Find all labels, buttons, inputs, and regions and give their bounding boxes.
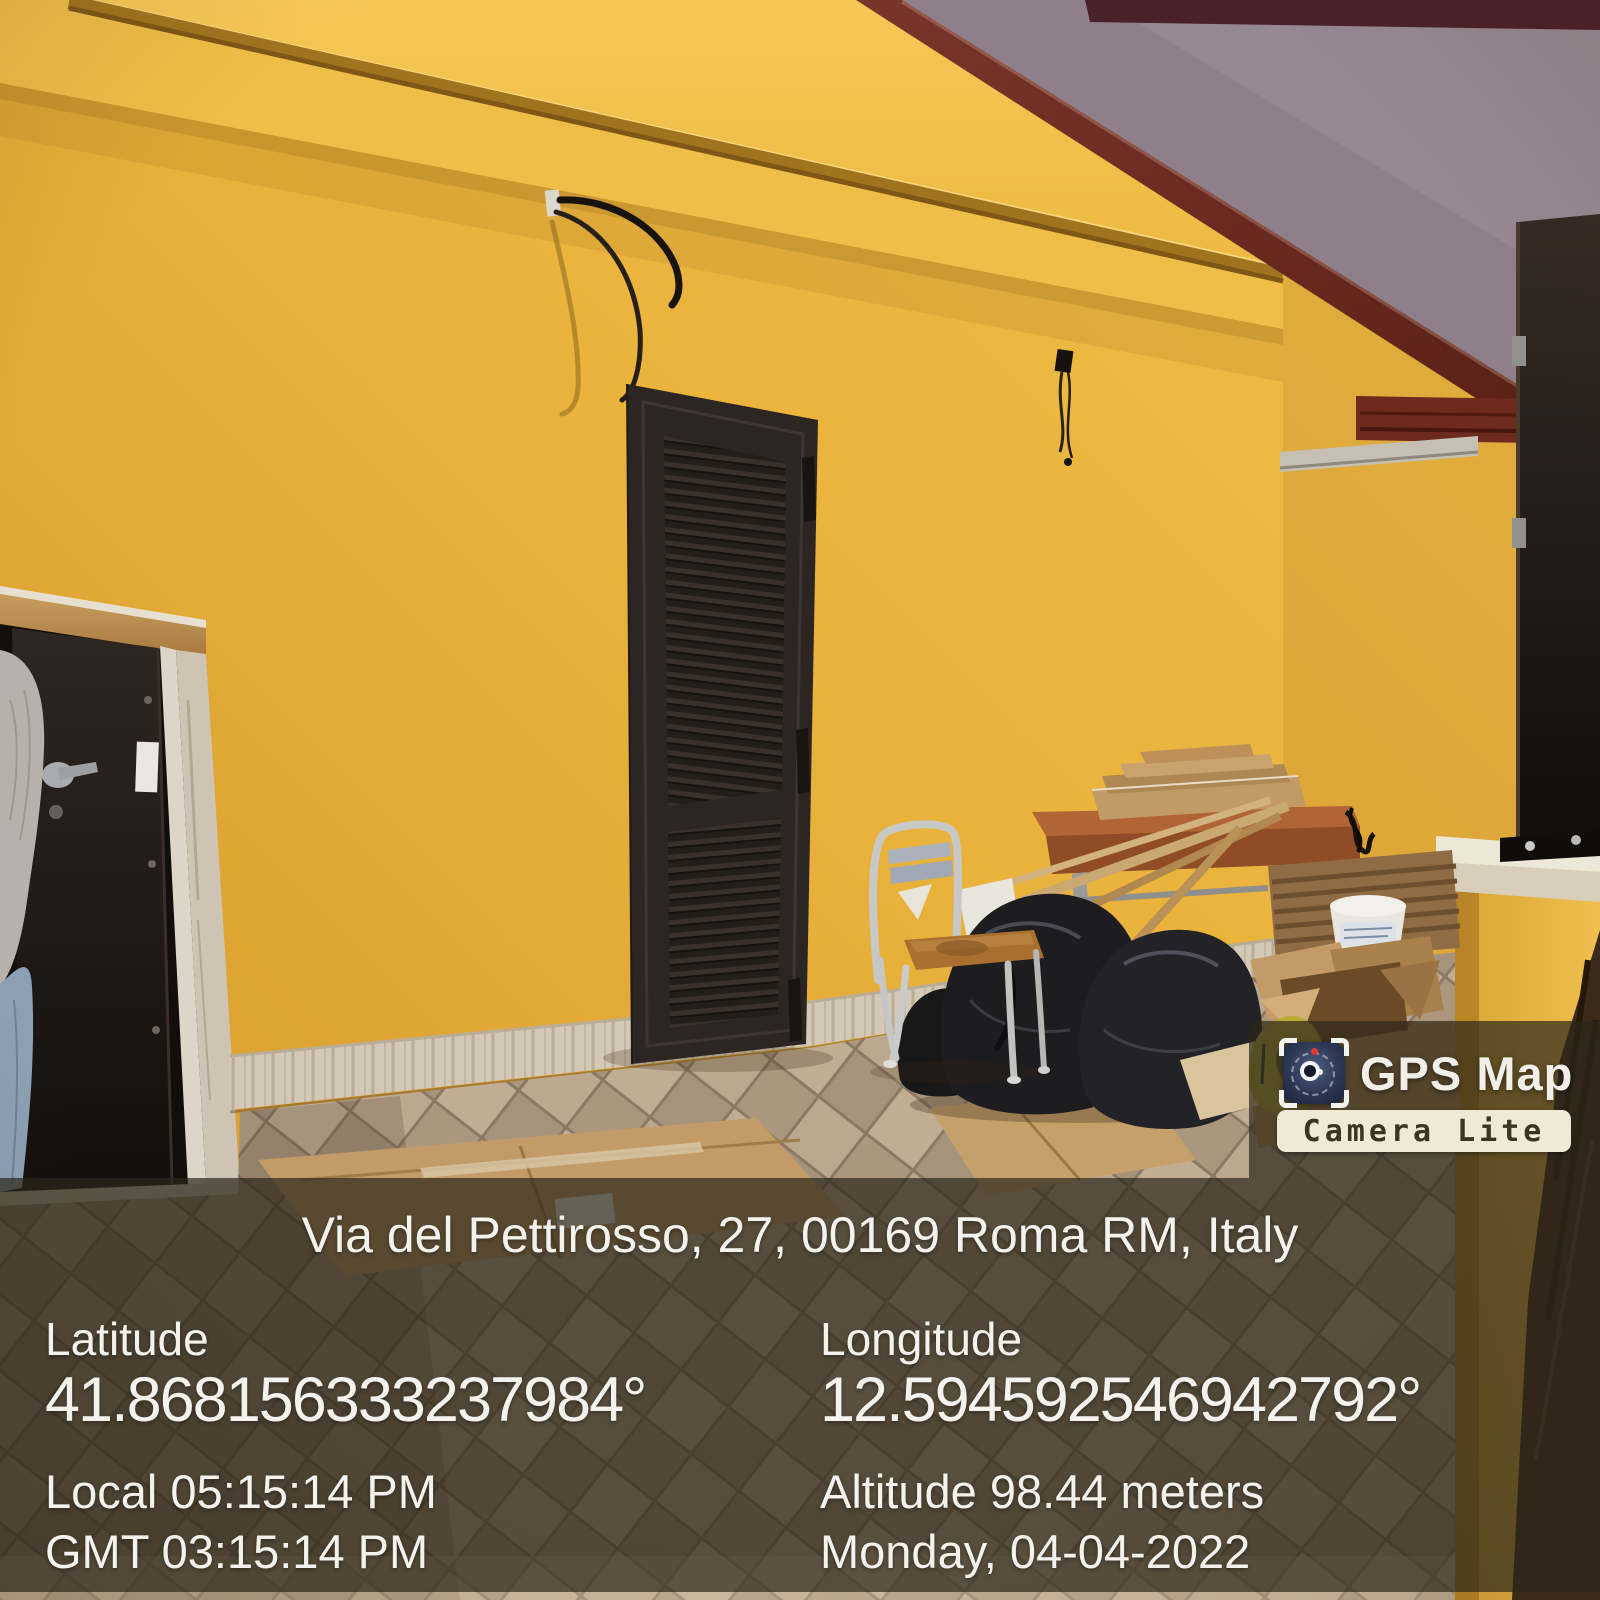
longitude-value: 12.594592546942792°: [820, 1364, 1420, 1436]
latitude-label: Latitude: [45, 1312, 209, 1366]
gps-camera-screenshot: GPS Map Camera Lite Via del Pettirosso, …: [0, 0, 1600, 1600]
compass-needle-icon: [1311, 1048, 1318, 1055]
longitude-label: Longitude: [820, 1312, 1022, 1366]
local-time: Local 05:15:14 PM: [45, 1464, 437, 1519]
viewfinder-bracket-icon: [1331, 1038, 1349, 1056]
gmt-time: GMT 03:15:14 PM: [45, 1524, 428, 1579]
lens-highlight-icon: [1317, 1069, 1323, 1075]
app-edition-badge: Camera Lite: [1277, 1110, 1571, 1152]
altitude: Altitude 98.44 meters: [820, 1464, 1264, 1519]
gps-map-camera-app-icon: [1283, 1042, 1345, 1104]
app-name: GPS Map: [1360, 1046, 1600, 1101]
viewfinder-bracket-icon: [1279, 1038, 1297, 1056]
date: Monday, 04-04-2022: [820, 1524, 1250, 1579]
viewfinder-bracket-icon: [1331, 1090, 1349, 1108]
geo-info-overlay: Via del Pettirosso, 27, 00169 Roma RM, I…: [0, 1178, 1600, 1592]
address-text: Via del Pettirosso, 27, 00169 Roma RM, I…: [0, 1206, 1600, 1264]
viewfinder-bracket-icon: [1279, 1090, 1297, 1108]
latitude-value: 41.868156333237984°: [45, 1364, 645, 1436]
